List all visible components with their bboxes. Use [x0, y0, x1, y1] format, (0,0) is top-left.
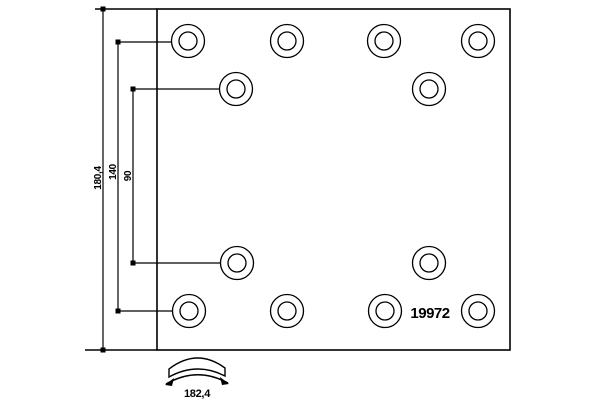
dim-arrow-icon — [131, 87, 136, 92]
rivet-hole — [462, 25, 495, 58]
rivet-hole — [462, 295, 495, 328]
dim-label-total-height: 180,4 — [93, 166, 104, 190]
rivet-hole — [221, 247, 254, 280]
part-number: 19972 — [410, 305, 449, 322]
rivet-hole — [172, 25, 205, 58]
dim-label-arc-width: 182,4 — [184, 388, 211, 400]
rivet-hole — [271, 25, 304, 58]
rivet-hole — [220, 73, 253, 106]
dim-arrow-icon — [131, 261, 136, 266]
plate-outline — [157, 9, 510, 350]
dim-arrow-icon — [116, 40, 121, 45]
rivet-hole — [271, 295, 304, 328]
rivet-hole — [369, 295, 402, 328]
rivet-hole — [413, 73, 446, 106]
dim-label-inner-span: 90 — [123, 170, 134, 181]
technical-drawing: 180,4 140 90 19972 182,4 — [0, 0, 600, 400]
rivet-hole — [173, 295, 206, 328]
dim-arrow-icon — [220, 377, 229, 385]
dim-arrow-icon — [116, 309, 121, 314]
dim-label-outer-span: 140 — [108, 163, 119, 180]
rivet-hole — [368, 25, 401, 58]
rivet-hole — [413, 247, 446, 280]
dim-arrow-icon — [101, 348, 106, 353]
arc-width-dimension — [166, 375, 228, 384]
brake-lining-drawing: 180,4 140 90 19972 182,4 — [0, 0, 600, 400]
dim-arrow-icon — [165, 378, 174, 386]
dim-arrow-icon — [101, 7, 106, 12]
